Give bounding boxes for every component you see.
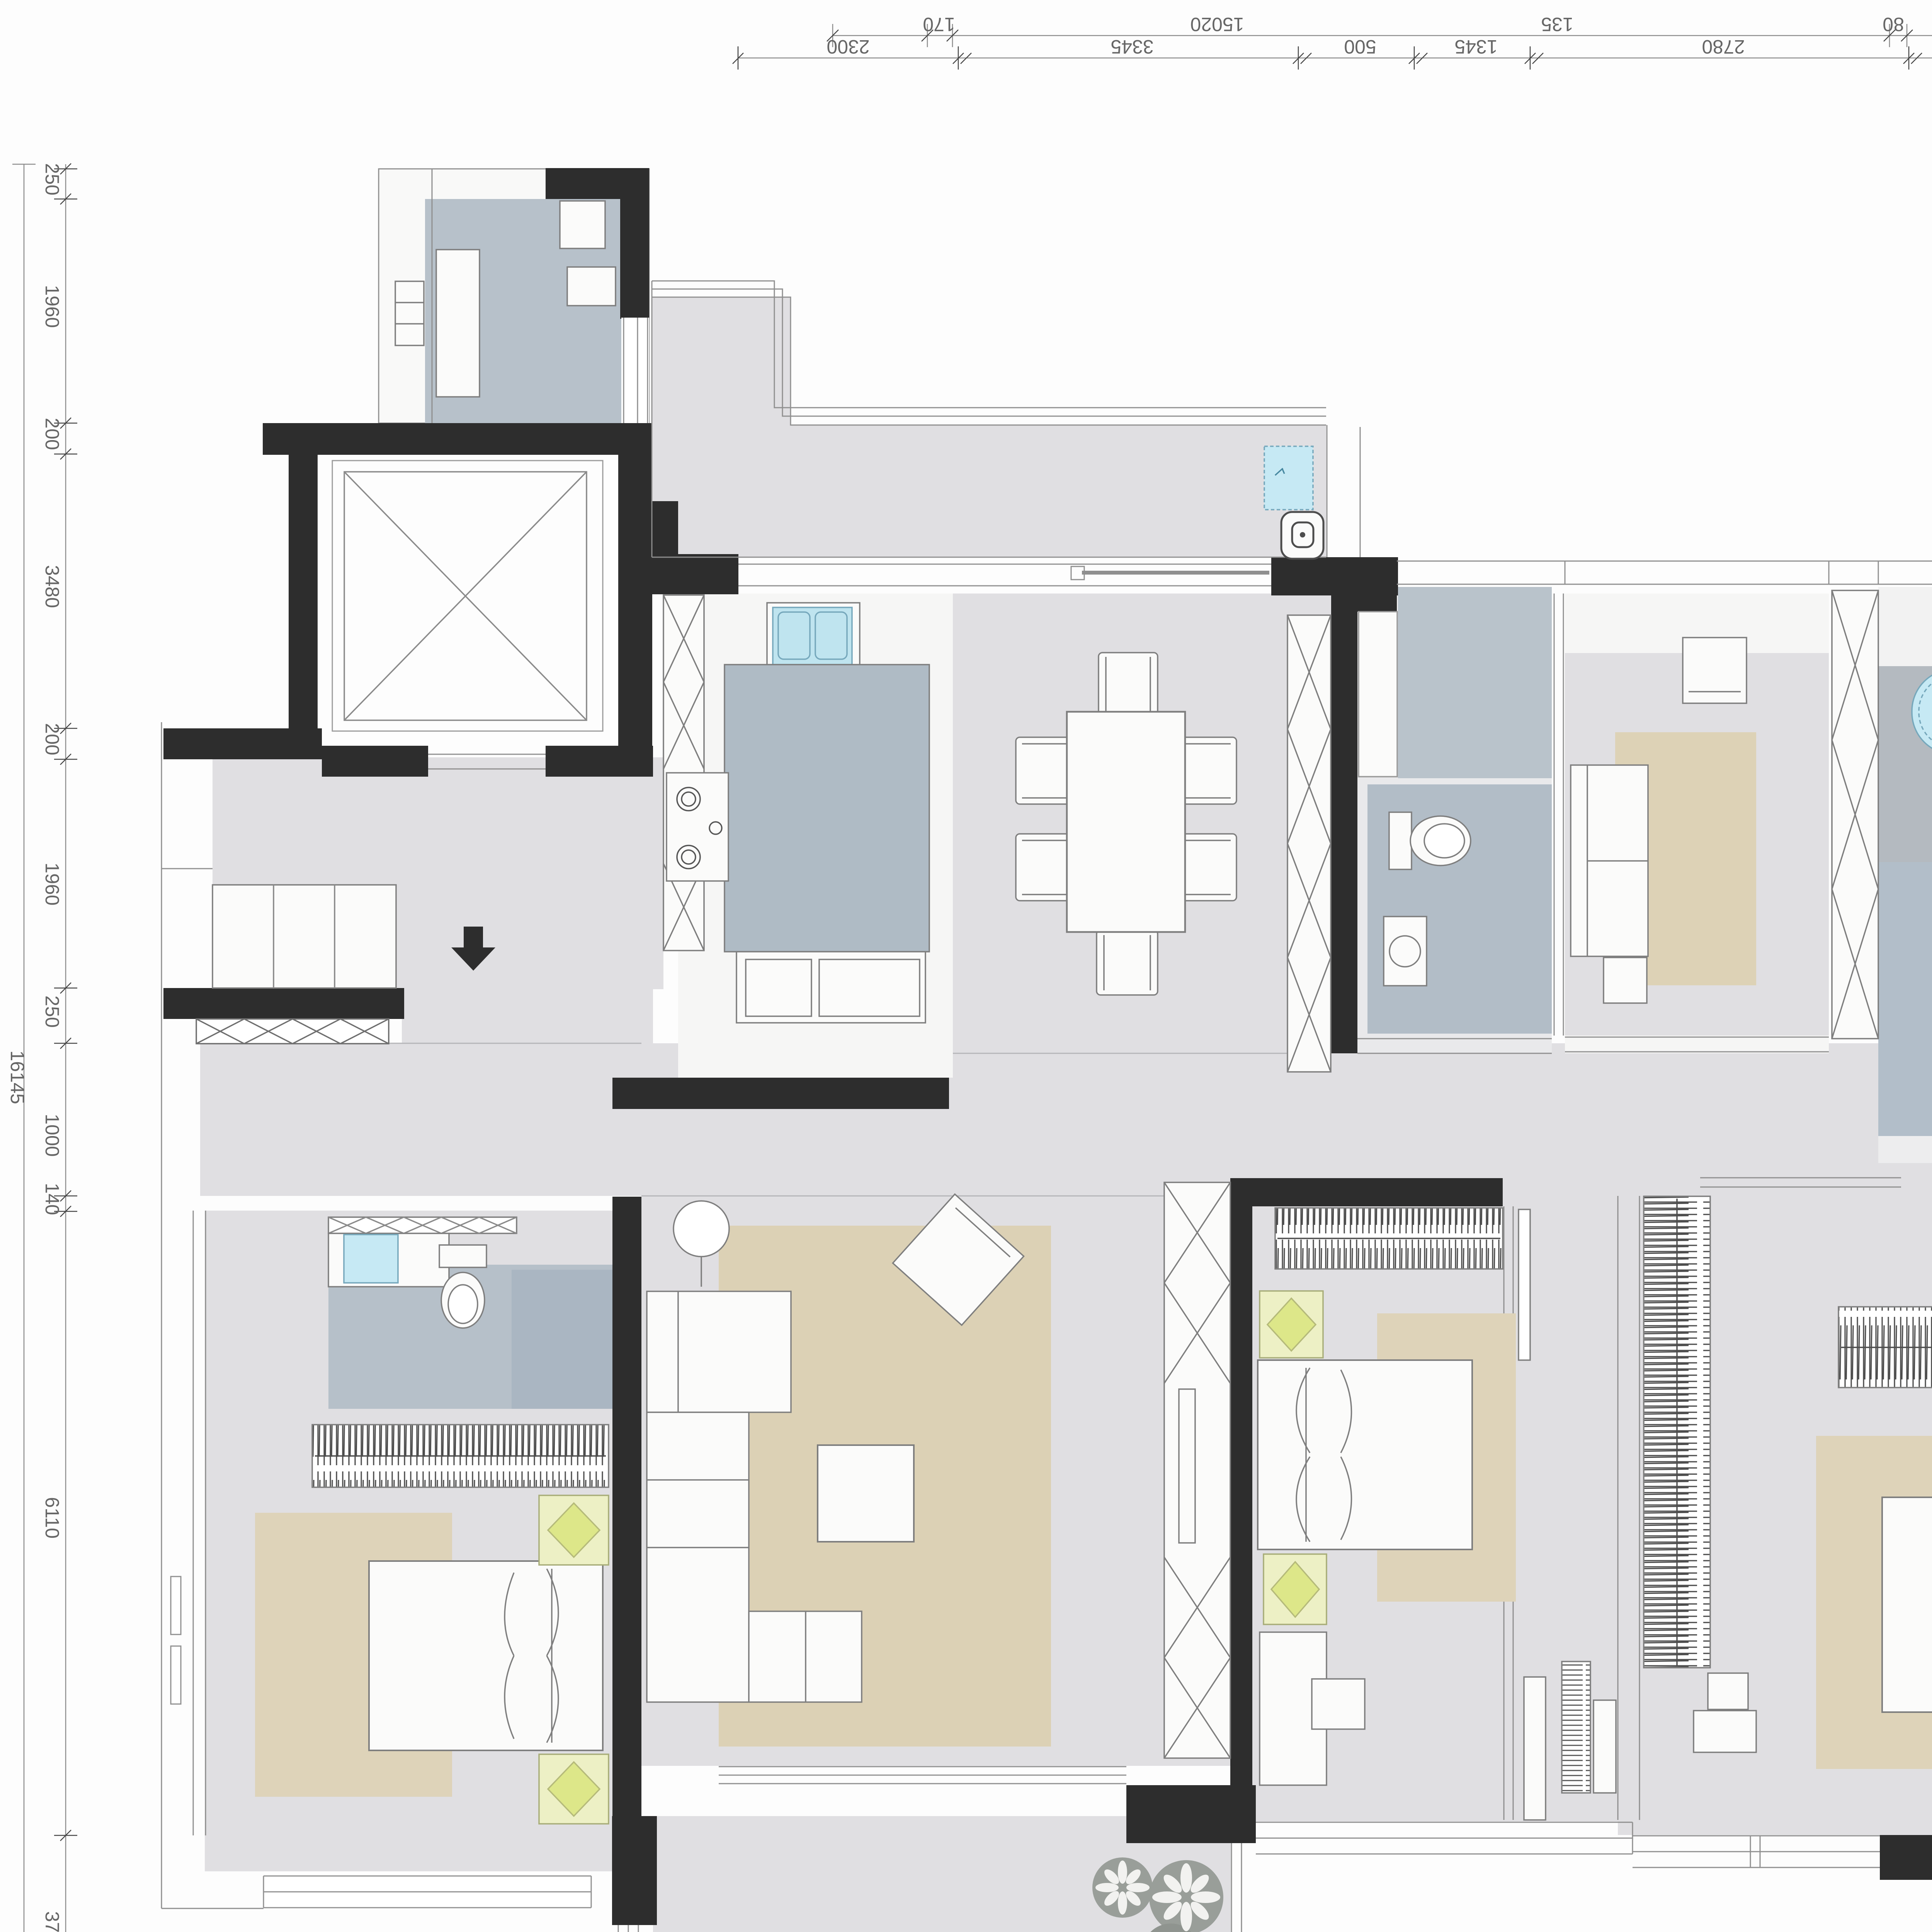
svg-text:1345: 1345: [1454, 36, 1497, 58]
svg-text:6110: 6110: [41, 1497, 63, 1539]
svg-text:16145: 16145: [7, 1050, 28, 1104]
svg-text:2300: 2300: [827, 36, 869, 58]
svg-text:1000: 1000: [41, 1114, 63, 1156]
svg-text:2780: 2780: [1702, 36, 1745, 58]
svg-text:375: 375: [41, 1911, 63, 1932]
svg-text:3480: 3480: [41, 565, 63, 608]
svg-text:500: 500: [1344, 36, 1376, 58]
svg-text:250: 250: [41, 163, 63, 195]
svg-text:170: 170: [923, 14, 955, 35]
svg-text:200: 200: [41, 418, 63, 450]
svg-text:1960: 1960: [41, 285, 63, 328]
svg-text:80: 80: [1883, 14, 1904, 35]
svg-text:200: 200: [41, 723, 63, 755]
svg-text:140: 140: [41, 1183, 63, 1215]
svg-text:15020: 15020: [1190, 14, 1244, 35]
svg-text:250: 250: [41, 995, 63, 1027]
svg-text:3345: 3345: [1111, 36, 1153, 58]
svg-text:135: 135: [1541, 14, 1573, 35]
svg-text:1960: 1960: [41, 862, 63, 905]
